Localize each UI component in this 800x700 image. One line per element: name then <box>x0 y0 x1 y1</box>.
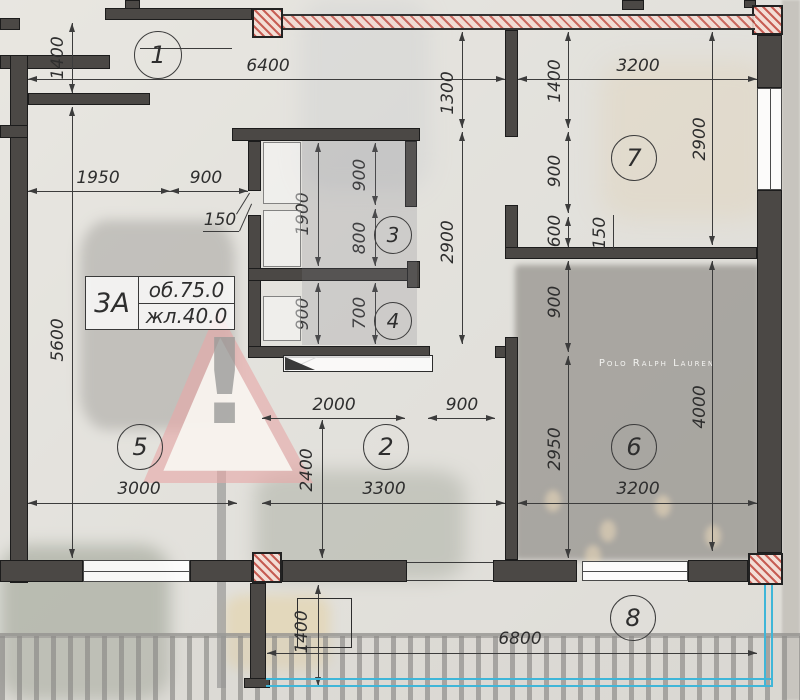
dimension-line <box>568 356 569 558</box>
thin-line <box>407 580 493 581</box>
wall <box>505 247 757 259</box>
dimension-arrow <box>170 188 179 194</box>
wall <box>757 190 782 553</box>
dimension-line <box>462 32 463 128</box>
room-number-circle: 4 <box>374 302 412 340</box>
dimension-label: 3300 <box>362 479 405 499</box>
room-number-circle: 3 <box>374 216 412 254</box>
dimension-arrow <box>228 500 237 506</box>
red-hatched-column <box>252 8 283 38</box>
dimension-arrow <box>565 132 571 141</box>
room-number-circle: 1 <box>134 31 182 79</box>
balcony-rail <box>266 678 772 687</box>
dimension-arrow <box>161 188 170 194</box>
dimension-line <box>28 503 237 504</box>
dimension-arrow <box>496 500 505 506</box>
dimension-arrow <box>396 415 405 421</box>
dimension-arrow <box>459 335 465 344</box>
dimension-line <box>428 418 495 419</box>
wall <box>28 93 150 105</box>
window-mullion <box>582 571 688 572</box>
dimension-arrow <box>565 549 571 558</box>
dimension-leader-label: 150 <box>590 217 610 249</box>
dimension-arrow <box>28 76 37 82</box>
dimension-arrow <box>709 261 715 270</box>
dimension-arrow <box>428 415 437 421</box>
dimension-line <box>72 23 73 93</box>
dimension-label: 900 <box>446 395 478 415</box>
dimension-label: 1400 <box>545 59 565 102</box>
dimension-arrow <box>565 119 571 128</box>
dimension-arrow <box>28 188 37 194</box>
dimension-line <box>267 653 757 654</box>
plan-layer: 6400320019509002000900300033003200680014… <box>0 0 800 700</box>
floor-plan-screenshot: Polo Ralph Lauren ! 64003200195090020009… <box>0 0 800 700</box>
dimension-label: 6800 <box>498 629 541 649</box>
dimension-arrow <box>315 585 321 594</box>
wall <box>0 125 28 138</box>
dimension-arrow <box>459 119 465 128</box>
apartment-type: 3А <box>86 277 138 329</box>
red-hatched-column <box>748 553 783 585</box>
total-area: об.75.0 <box>139 277 234 304</box>
room-number-circle: 2 <box>363 424 409 470</box>
living-area: жл.40.0 <box>139 304 234 330</box>
wall <box>105 8 252 20</box>
dimension-arrow <box>518 76 527 82</box>
dimension-label: 2950 <box>545 427 565 470</box>
dimension-arrow <box>565 343 571 352</box>
dimension-arrow <box>69 84 75 93</box>
dimension-line <box>322 420 323 558</box>
dimension-arrow <box>319 549 325 558</box>
balcony-rail <box>764 585 773 687</box>
dimension-line <box>262 418 405 419</box>
wall <box>190 560 252 582</box>
thin-line <box>613 215 614 250</box>
wall <box>505 30 518 137</box>
wall <box>248 141 261 191</box>
dimension-label: 2900 <box>690 117 710 160</box>
room-number-circle: 7 <box>611 135 657 181</box>
dimension-arrow <box>28 500 37 506</box>
dimension-label: 2400 <box>297 448 317 491</box>
dimension-arrow <box>518 500 527 506</box>
dimension-line <box>568 261 569 352</box>
wall <box>232 128 420 141</box>
room-number-circle: 6 <box>611 424 657 470</box>
dimension-label: 3200 <box>616 479 659 499</box>
dimension-line <box>568 32 569 128</box>
dimension-label: 3000 <box>117 479 160 499</box>
wall <box>505 205 518 250</box>
dimension-arrow <box>565 356 571 365</box>
dimension-line <box>568 132 569 213</box>
dimension-line <box>262 503 505 504</box>
dimension-arrow <box>69 549 75 558</box>
dimension-arrow <box>709 32 715 41</box>
dimension-line <box>28 191 170 192</box>
wall <box>493 560 577 582</box>
wall <box>125 0 140 9</box>
dimension-label: 1950 <box>76 168 119 188</box>
dimension-line <box>518 503 757 504</box>
dimension-label: 4000 <box>690 385 710 428</box>
thin-line <box>407 562 493 563</box>
dimension-arrow <box>709 542 715 551</box>
window-mullion <box>83 571 190 572</box>
dimension-arrow <box>748 650 757 656</box>
red-hatched-column <box>752 5 783 35</box>
dimension-arrow <box>262 415 271 421</box>
wall <box>0 18 20 30</box>
wall <box>282 560 407 582</box>
thin-line <box>203 231 239 232</box>
dimension-line <box>712 32 713 245</box>
dimension-arrow <box>262 500 271 506</box>
dimension-arrow <box>748 500 757 506</box>
dimension-arrow <box>496 76 505 82</box>
dimension-arrow <box>239 188 248 194</box>
wall <box>505 337 518 560</box>
dimension-line <box>28 79 505 80</box>
wall <box>250 583 266 683</box>
dimension-line <box>72 107 73 558</box>
dimension-label: 900 <box>545 286 565 318</box>
wall <box>688 560 748 582</box>
red-hatched-column <box>252 552 282 583</box>
balcony-hatch-outline <box>297 598 352 648</box>
wall <box>622 0 644 10</box>
dimension-arrow <box>565 204 571 213</box>
dimension-arrow <box>565 238 571 247</box>
dimension-label: 2900 <box>438 220 458 263</box>
room-number-circle: 8 <box>610 595 656 641</box>
dimension-label: 2000 <box>312 395 355 415</box>
dimension-arrow <box>69 107 75 116</box>
dimension-leader-label: 150 <box>204 210 236 230</box>
dimension-line <box>170 191 248 192</box>
dimension-label: 600 <box>545 215 565 247</box>
dimension-arrow <box>459 132 465 141</box>
dimension-label: 900 <box>190 168 222 188</box>
wall <box>0 560 83 582</box>
apartment-area-label: 3А об.75.0 жл.40.0 <box>85 276 235 330</box>
red-hatched-wall <box>283 14 755 30</box>
dimension-line <box>462 132 463 344</box>
dimension-label: 1300 <box>438 71 458 114</box>
dimension-arrow <box>319 420 325 429</box>
dimension-label: 5600 <box>48 318 68 361</box>
dimension-arrow <box>565 261 571 270</box>
window-mullion <box>770 88 771 190</box>
closet-fixture <box>263 296 301 341</box>
dimension-label: 900 <box>545 155 565 187</box>
wall <box>757 35 782 88</box>
dimension-arrow <box>459 32 465 41</box>
dimension-label: 6400 <box>246 56 289 76</box>
dimension-label: 1400 <box>48 36 68 79</box>
dimension-label: 3200 <box>616 56 659 76</box>
dimension-arrow <box>748 76 757 82</box>
dimension-arrow <box>565 32 571 41</box>
dimension-arrow <box>486 415 495 421</box>
dimension-arrow <box>709 236 715 245</box>
closet-fixture <box>263 142 301 204</box>
room-number-circle: 5 <box>117 424 163 470</box>
dimension-line <box>712 261 713 551</box>
dimension-arrow <box>69 23 75 32</box>
closet-fixture <box>263 210 301 267</box>
dimension-arrow <box>565 217 571 226</box>
dimension-arrow <box>267 650 276 656</box>
wall <box>248 215 261 358</box>
